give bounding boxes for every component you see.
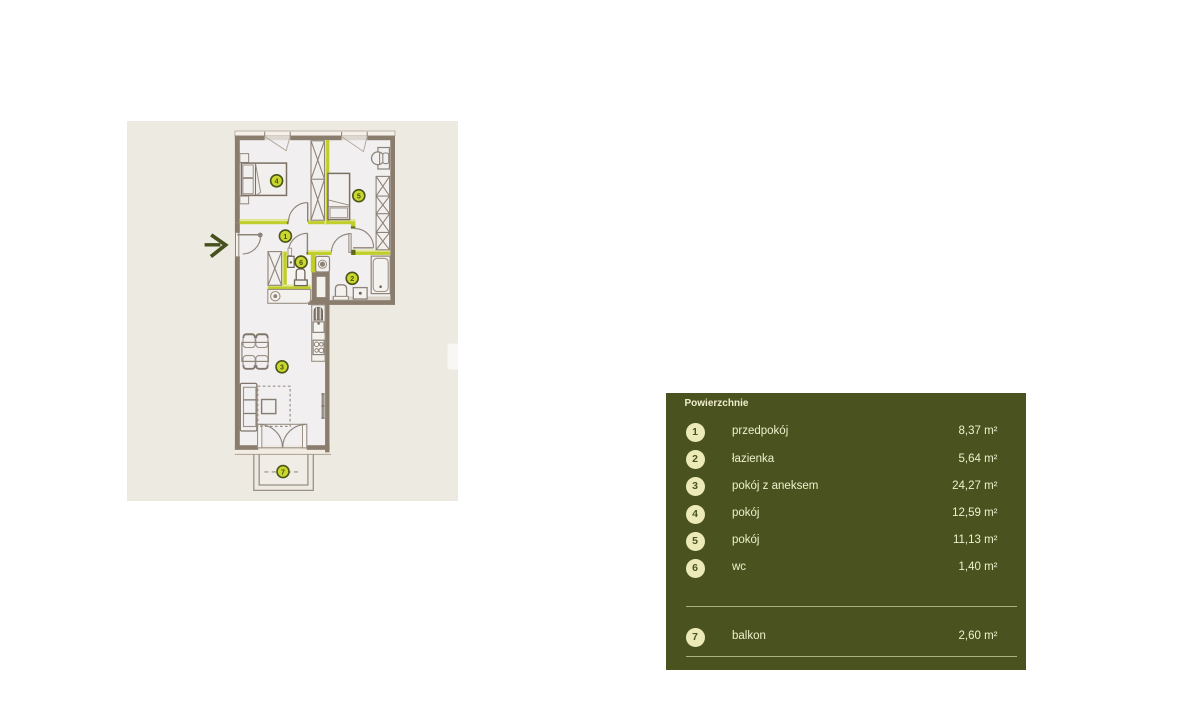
- svg-text:7: 7: [281, 468, 285, 476]
- svg-text:5: 5: [357, 192, 361, 200]
- svg-text:6: 6: [299, 259, 303, 267]
- svg-text:4: 4: [275, 178, 279, 186]
- svg-text:3: 3: [280, 364, 284, 372]
- svg-text:1: 1: [283, 233, 287, 241]
- svg-text:2: 2: [350, 275, 354, 283]
